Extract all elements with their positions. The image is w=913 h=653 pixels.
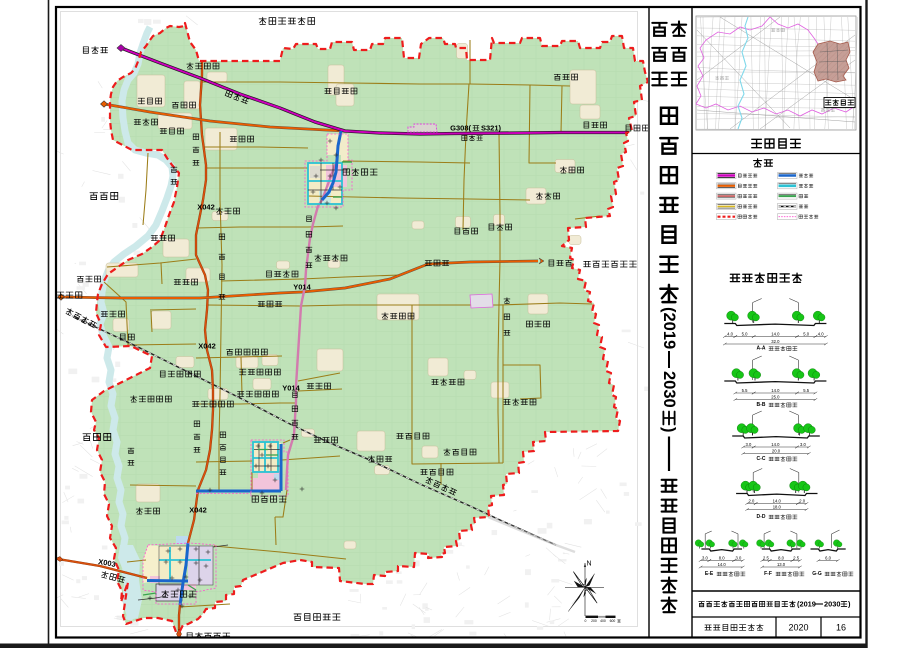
svg-text:14.0: 14.0 xyxy=(718,562,727,567)
svg-text:2030: 2030 xyxy=(660,371,678,408)
svg-text:G-G: G-G xyxy=(812,571,822,577)
svg-text:3.0: 3.0 xyxy=(746,442,752,447)
svg-text:Y014: Y014 xyxy=(293,283,311,292)
svg-text:X042: X042 xyxy=(197,203,215,212)
svg-text:13.0: 13.0 xyxy=(777,562,786,567)
svg-text:200: 200 xyxy=(591,619,597,623)
svg-text:8.0: 8.0 xyxy=(719,555,725,560)
svg-text:32.0: 32.0 xyxy=(771,339,780,344)
svg-text:2.5: 2.5 xyxy=(763,555,769,560)
svg-text:X042: X042 xyxy=(189,506,207,515)
svg-text:4.0: 4.0 xyxy=(818,331,824,336)
svg-text:2020: 2020 xyxy=(788,623,808,633)
svg-text:18.0: 18.0 xyxy=(773,504,782,509)
svg-text:14.0: 14.0 xyxy=(771,331,780,336)
svg-text:): ) xyxy=(660,427,678,433)
svg-text:2.0: 2.0 xyxy=(799,498,805,503)
svg-text:Y014: Y014 xyxy=(282,384,300,393)
svg-text:2.0: 2.0 xyxy=(748,498,754,503)
svg-text:A-A: A-A xyxy=(757,346,766,352)
svg-text:4.0: 4.0 xyxy=(727,331,733,336)
svg-text:600: 600 xyxy=(610,619,616,623)
svg-text:400: 400 xyxy=(600,619,606,623)
svg-text:14.0: 14.0 xyxy=(771,388,780,393)
svg-text:6.0: 6.0 xyxy=(825,555,831,560)
svg-text:C-C: C-C xyxy=(757,456,766,462)
svg-text:25.0: 25.0 xyxy=(771,394,780,399)
svg-text:(2019: (2019 xyxy=(797,600,816,609)
svg-text:8.0: 8.0 xyxy=(778,555,784,560)
svg-text:S321): S321) xyxy=(481,124,502,133)
svg-text:2030: 2030 xyxy=(824,600,840,609)
svg-text:G308(: G308( xyxy=(450,124,471,133)
svg-text:E-E: E-E xyxy=(705,571,714,577)
svg-text:20.0: 20.0 xyxy=(772,448,781,453)
svg-text:F-F: F-F xyxy=(764,571,772,577)
svg-text:3.0: 3.0 xyxy=(702,555,708,560)
svg-text:3.0: 3.0 xyxy=(800,442,806,447)
svg-text:14.0: 14.0 xyxy=(773,498,782,503)
svg-text:14.0: 14.0 xyxy=(771,442,780,447)
svg-text:3.0: 3.0 xyxy=(735,555,741,560)
svg-text:B-B: B-B xyxy=(757,402,766,408)
svg-text:0: 0 xyxy=(585,619,587,623)
svg-text:5.5: 5.5 xyxy=(803,388,809,393)
svg-text:(2019: (2019 xyxy=(660,307,678,349)
svg-text:5.5: 5.5 xyxy=(742,388,748,393)
svg-text:D-D: D-D xyxy=(757,514,766,520)
svg-text:5.0: 5.0 xyxy=(803,331,809,336)
svg-text:X042: X042 xyxy=(198,342,216,351)
svg-text:5.0: 5.0 xyxy=(742,331,748,336)
svg-text:16: 16 xyxy=(836,623,846,633)
svg-text:2.5: 2.5 xyxy=(793,555,799,560)
svg-text:N: N xyxy=(586,561,591,568)
